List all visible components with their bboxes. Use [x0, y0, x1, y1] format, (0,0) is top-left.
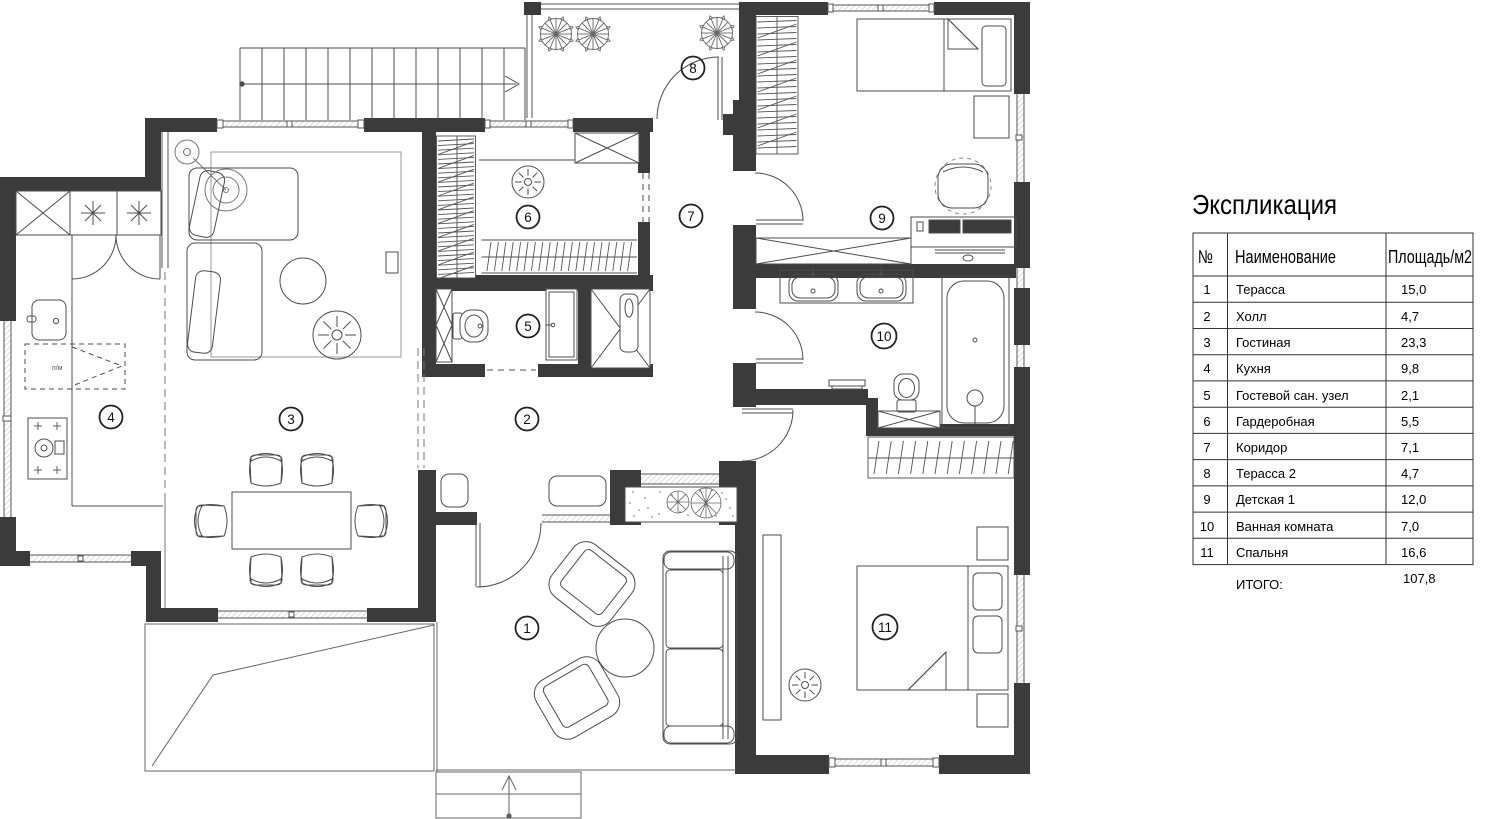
svg-text:Детская 1: Детская 1 — [1236, 492, 1295, 507]
svg-text:10: 10 — [876, 329, 891, 344]
svg-text:8: 8 — [689, 61, 697, 76]
svg-text:Наименование: Наименование — [1235, 246, 1336, 267]
svg-text:Терасса 2: Терасса 2 — [1236, 466, 1296, 481]
svg-text:15,0: 15,0 — [1401, 282, 1426, 297]
svg-text:3: 3 — [287, 412, 295, 427]
svg-text:Экспликация: Экспликация — [1192, 189, 1337, 220]
svg-text:п/м: п/м — [52, 365, 63, 372]
svg-text:Кухня: Кухня — [1236, 361, 1271, 376]
svg-text:11: 11 — [878, 620, 892, 635]
svg-text:4,7: 4,7 — [1401, 309, 1419, 324]
svg-text:2: 2 — [1203, 309, 1210, 324]
svg-text:10: 10 — [1200, 519, 1214, 534]
svg-text:№: № — [1198, 246, 1213, 267]
svg-text:5: 5 — [1203, 388, 1210, 403]
svg-text:Коридор: Коридор — [1236, 440, 1287, 455]
svg-text:9: 9 — [878, 211, 886, 226]
svg-text:9,8: 9,8 — [1401, 361, 1419, 376]
svg-text:7: 7 — [687, 209, 695, 224]
svg-text:3: 3 — [1203, 335, 1210, 350]
svg-text:7,1: 7,1 — [1401, 440, 1419, 455]
svg-text:5: 5 — [524, 319, 532, 334]
svg-text:1: 1 — [1203, 282, 1210, 297]
svg-text:6: 6 — [1203, 414, 1210, 429]
svg-text:107,8: 107,8 — [1403, 571, 1436, 586]
svg-text:16,6: 16,6 — [1401, 545, 1426, 560]
svg-text:12,0: 12,0 — [1401, 492, 1426, 507]
svg-text:4: 4 — [1203, 361, 1210, 376]
svg-text:7,0: 7,0 — [1401, 519, 1419, 534]
svg-text:7: 7 — [1203, 440, 1210, 455]
svg-text:Холл: Холл — [1236, 309, 1267, 324]
svg-text:23,3: 23,3 — [1401, 335, 1426, 350]
svg-text:Площадь/м2: Площадь/м2 — [1388, 246, 1472, 267]
svg-text:Гостевой сан. узел: Гостевой сан. узел — [1236, 388, 1349, 403]
svg-text:2: 2 — [523, 412, 531, 427]
svg-text:4,7: 4,7 — [1401, 466, 1419, 481]
svg-text:Спальня: Спальня — [1236, 545, 1288, 560]
svg-text:11: 11 — [1200, 545, 1214, 560]
svg-text:2,1: 2,1 — [1401, 388, 1419, 403]
svg-text:Гостиная: Гостиная — [1236, 335, 1291, 350]
svg-text:ИТОГО:: ИТОГО: — [1236, 577, 1283, 592]
svg-text:1: 1 — [523, 621, 531, 636]
svg-text:4: 4 — [107, 410, 115, 425]
svg-text:Ванная комната: Ванная комната — [1236, 519, 1334, 534]
svg-text:5,5: 5,5 — [1401, 414, 1419, 429]
svg-text:8: 8 — [1203, 466, 1210, 481]
svg-text:Терасса: Терасса — [1236, 282, 1286, 297]
svg-text:Гардеробная: Гардеробная — [1236, 414, 1315, 429]
svg-text:9: 9 — [1203, 492, 1210, 507]
svg-text:6: 6 — [524, 210, 532, 225]
